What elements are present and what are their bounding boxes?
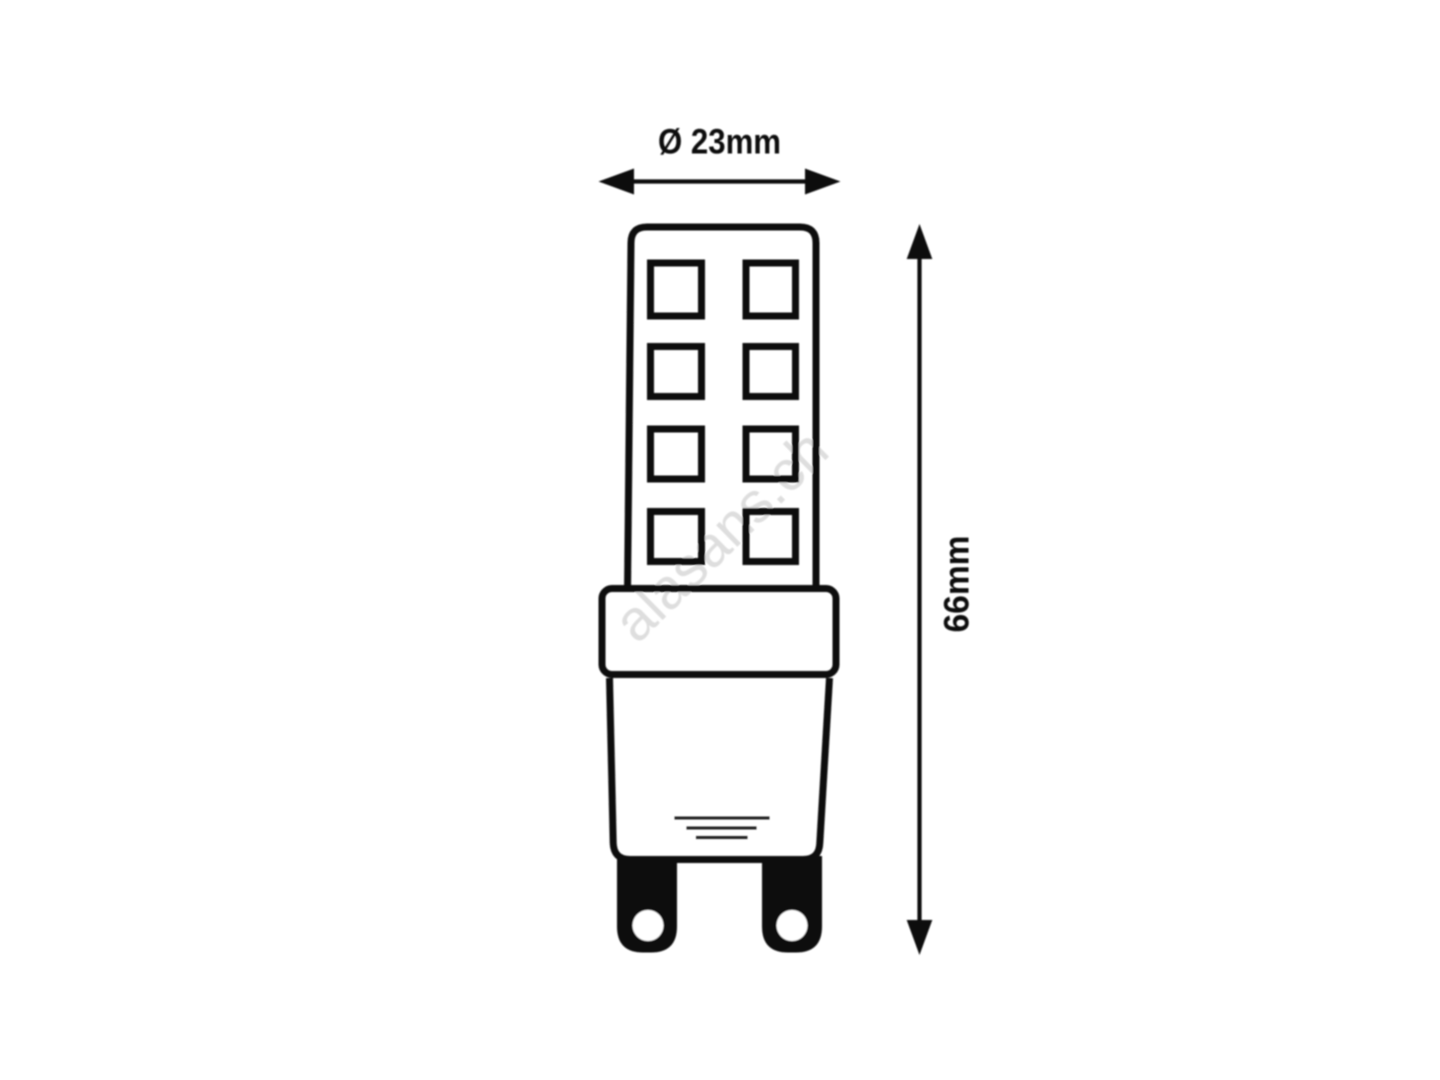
svg-text:Ø 23mm: Ø 23mm	[658, 123, 781, 162]
svg-text:66mm: 66mm	[938, 536, 977, 633]
